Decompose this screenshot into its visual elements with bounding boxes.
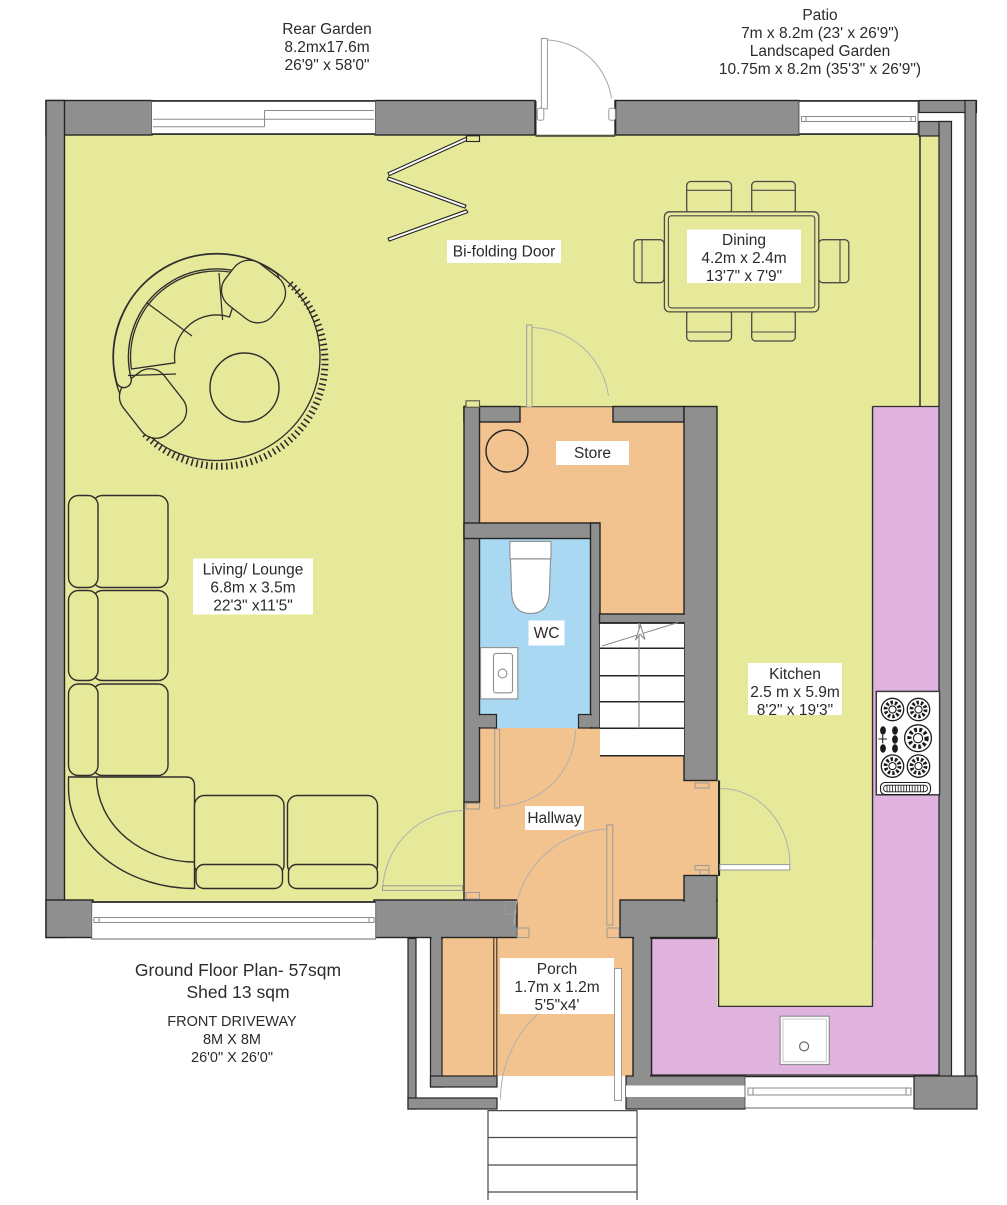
svg-text:8M X 8M: 8M X 8M [203, 1032, 261, 1048]
svg-text:2.5 m x 5.9m: 2.5 m x 5.9m [750, 684, 840, 701]
svg-text:22'3" x11'5": 22'3" x11'5" [213, 598, 293, 615]
svg-text:Hallway: Hallway [527, 810, 582, 827]
svg-text:8'2" x 19'3": 8'2" x 19'3" [757, 702, 833, 719]
svg-text:5'5"x4': 5'5"x4' [534, 997, 579, 1014]
svg-text:26'9" x 58'0": 26'9" x 58'0" [284, 57, 369, 74]
svg-text:Living/ Lounge: Living/ Lounge [203, 562, 304, 579]
svg-text:Shed 13 sqm: Shed 13 sqm [186, 982, 289, 1002]
svg-text:13'7" x 7'9": 13'7" x 7'9" [706, 268, 782, 285]
svg-text:4.2m x 2.4m: 4.2m x 2.4m [701, 250, 786, 267]
svg-text:Rear Garden: Rear Garden [282, 21, 372, 38]
svg-text:26'0" X 26'0": 26'0" X 26'0" [191, 1050, 273, 1066]
svg-text:6.8m x 3.5m: 6.8m x 3.5m [210, 580, 295, 597]
svg-text:Store: Store [574, 445, 611, 462]
svg-text:Dining: Dining [722, 232, 766, 249]
svg-text:1.7m x 1.2m: 1.7m x 1.2m [514, 979, 599, 996]
svg-text:FRONT DRIVEWAY: FRONT DRIVEWAY [167, 1014, 297, 1030]
svg-text:Kitchen: Kitchen [769, 666, 821, 683]
svg-text:WC: WC [534, 625, 560, 642]
svg-text:Porch: Porch [537, 961, 578, 978]
svg-text:8.2mx17.6m: 8.2mx17.6m [284, 39, 369, 56]
svg-text:Ground Floor Plan- 57sqm: Ground Floor Plan- 57sqm [135, 960, 341, 980]
svg-text:7m x 8.2m (23' x 26'9"): 7m x 8.2m (23' x 26'9") [741, 25, 899, 42]
svg-text:Landscaped Garden: Landscaped Garden [750, 43, 890, 60]
svg-text:10.75m x 8.2m (35'3" x 26'9"): 10.75m x 8.2m (35'3" x 26'9") [719, 61, 921, 78]
svg-text:Patio: Patio [802, 7, 837, 24]
svg-text:Bi-folding Door: Bi-folding Door [453, 244, 556, 261]
